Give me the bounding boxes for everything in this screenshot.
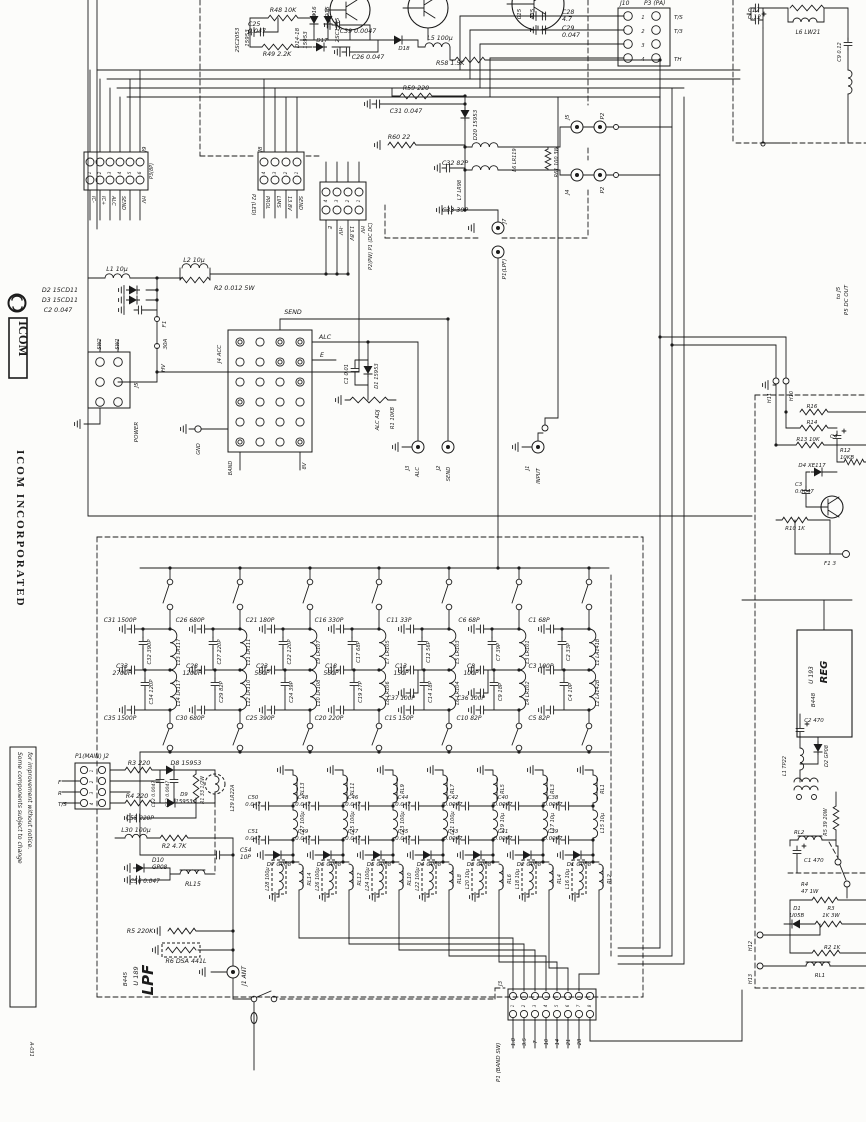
capacitor — [267, 706, 279, 714]
label-io-p1dc-sig-0: E — [326, 226, 332, 230]
label-input-c1: C1 0.01 — [344, 364, 350, 384]
terminal — [238, 400, 242, 404]
terminal — [307, 579, 313, 585]
label-lpf-rev: B445 — [123, 971, 129, 986]
junction-dot — [350, 627, 353, 630]
label-lpf-filters-5-ct: C6 68P — [458, 617, 480, 624]
terminal — [98, 777, 105, 784]
terminal — [256, 438, 264, 446]
label-lpf-band-bands-1: 3.5 — [522, 1038, 528, 1046]
ground-symbol — [458, 851, 463, 860]
wire — [335, 770, 343, 775]
ground-symbol — [119, 306, 124, 315]
wire — [582, 729, 588, 745]
diode — [792, 920, 800, 929]
label-lpf-filters-3-ct: C16 330P — [315, 617, 344, 624]
terminal — [624, 54, 633, 63]
ground-symbol — [75, 420, 80, 429]
wire — [498, 170, 571, 175]
label-input-j1: J1 — [525, 466, 531, 472]
label-lpf-filters-2-cm2: C24 39P — [289, 680, 295, 702]
terminal — [509, 1010, 516, 1017]
terminal — [80, 788, 87, 795]
terminal — [260, 158, 268, 166]
label-dc-reg: REG — [819, 661, 830, 684]
label-lpf-main-ts: T/S — [58, 802, 67, 808]
label-lpf-filters-1-lt: L11 LR111 — [246, 639, 252, 666]
label-lpf-filters-4-cc: C13150P — [393, 663, 408, 677]
wire — [163, 729, 169, 745]
label-pa-d_range: D14-18 — [295, 27, 301, 48]
label-lpf-band-bands-5: 21 — [566, 1039, 572, 1045]
capacitor — [127, 625, 139, 633]
terminal — [296, 418, 304, 426]
label-lpf-filters-6-cc: C3 100P — [529, 663, 554, 670]
ground-symbol — [570, 893, 575, 902]
label-pa-q1: 2SC2053 — [235, 27, 241, 52]
label-lpf-band-pins-3: 4 — [543, 1004, 548, 1007]
ground-symbol — [260, 706, 265, 715]
terminal — [276, 358, 284, 366]
label-pa-c25: C250.047 — [248, 21, 266, 35]
junction-dot — [291, 838, 294, 841]
label-lpf-r1: R1 33 1/2W — [200, 776, 206, 804]
label-lpf-band-pins-4: 5 — [554, 1004, 559, 1007]
label-lpf-relays-4-c1: C420.0047 — [444, 795, 463, 808]
junction-dot — [283, 668, 286, 671]
terminal — [296, 438, 304, 446]
diode — [373, 851, 381, 860]
capacitor — [211, 678, 219, 690]
label-dc-rl1: RL1 — [815, 973, 825, 979]
label-lpf-filters-2-cb: C25 390P — [246, 715, 275, 722]
label-pa-d_type: 15953 — [303, 31, 309, 49]
terminal — [614, 125, 619, 130]
terminal — [96, 398, 105, 407]
inductor — [800, 748, 804, 770]
label-lpf-filters-4-cm2: C14 18P — [428, 680, 434, 702]
label-io-j8-sig-1: LIMS — [275, 196, 281, 209]
ground-symbol — [119, 296, 124, 305]
capacitor — [511, 802, 523, 810]
wire — [385, 770, 393, 775]
wire — [545, 97, 558, 425]
connector-j9 — [84, 152, 148, 190]
junction-dot — [155, 288, 158, 291]
coax-connector — [598, 125, 602, 129]
inductor — [105, 274, 130, 278]
label-io-j8-pins-2: 2 — [283, 171, 289, 174]
capacitor — [546, 706, 558, 714]
wire — [299, 890, 513, 991]
coax-connector — [446, 445, 450, 449]
junction-dot — [562, 668, 565, 671]
wire — [485, 770, 493, 775]
terminal — [344, 206, 352, 214]
terminal — [238, 440, 242, 444]
junction-dot — [352, 668, 355, 671]
label-io-j8-pins-1: 3 — [272, 171, 278, 174]
label-lpf-l29: L29 LR22A — [230, 784, 236, 811]
terminal — [446, 745, 452, 751]
terminal — [322, 188, 330, 196]
ground-symbol — [125, 864, 130, 873]
wire — [512, 729, 518, 745]
terminal — [773, 378, 779, 384]
wire — [84, 408, 100, 424]
label-power-f1: F1 — [162, 321, 168, 328]
connector-j4-acc — [228, 330, 312, 452]
label-lpf-filters-4-cb: C15 150P — [385, 715, 414, 722]
junction-dot — [591, 838, 594, 841]
junction-dot — [231, 853, 234, 856]
label-lpf-filters-6-ct: C1 68P — [528, 617, 550, 624]
label-input-alc: ALC — [318, 334, 332, 341]
terminal — [322, 206, 330, 214]
terminal — [586, 579, 592, 585]
wire — [442, 729, 448, 745]
junction-dot — [422, 668, 425, 671]
terminal — [652, 40, 661, 49]
terminal — [9, 295, 26, 312]
label-io-j9-pins-0: 1 — [87, 171, 93, 174]
terminal — [98, 766, 105, 773]
label-io-j9-j: J9 — [142, 146, 148, 153]
inductor — [794, 786, 818, 790]
terminal — [531, 1010, 538, 1017]
label-dc-h11: H11 — [767, 393, 773, 403]
label-dc-c1: C1 470 — [804, 858, 824, 864]
terminal — [333, 206, 341, 214]
junction-dot — [591, 853, 594, 856]
label-lpf-j1: J1 ANT — [241, 965, 248, 987]
capacitor — [281, 678, 289, 690]
label-lpf-band-pins-2: 3 — [532, 1004, 537, 1007]
label-lpf-r4: R4 220 — [126, 793, 148, 800]
resistor — [800, 409, 828, 415]
coax-connector — [575, 173, 579, 177]
terminal — [256, 338, 264, 346]
capacitor — [361, 802, 373, 810]
junction-dot — [168, 627, 171, 630]
junction-dot — [238, 708, 241, 711]
label-lpf-u: U 189 — [132, 966, 140, 985]
label-dc-r16: R16 — [807, 404, 818, 410]
capacitor — [336, 706, 348, 714]
terminal — [256, 398, 264, 406]
junction-dot — [447, 627, 450, 630]
capacitor — [420, 678, 428, 690]
junction-dot — [291, 804, 294, 807]
label-lpf-relays-0-rt: RL13 — [300, 782, 306, 795]
junction-dot — [447, 750, 450, 753]
label-lpf-filters-1-cm1: C27 220P — [217, 639, 223, 665]
wire — [355, 360, 368, 364]
label-dc-d1: D1U05B — [790, 906, 805, 919]
ground-symbol — [365, 100, 370, 109]
label-power-l1: L1 10μ — [106, 266, 128, 273]
label-io-j8-sig-3: SEND — [297, 196, 303, 210]
label-lpf-filters-2-cc: C23560P — [254, 663, 269, 677]
label-lpf-filters-4-lt: L5 LR103 — [455, 640, 461, 663]
label-lpf-relays-3-rt: RL7 — [450, 783, 456, 793]
label-io-p1dc-sig-3: HV — [359, 226, 365, 234]
terminal — [531, 992, 538, 999]
junction-dot — [391, 860, 394, 863]
label-dc-toj5: to J5 — [836, 286, 842, 299]
terminal — [282, 158, 290, 166]
terminal — [586, 723, 592, 729]
junction-dot — [591, 804, 594, 807]
diode — [523, 851, 531, 860]
terminal — [98, 799, 105, 806]
label-lpf-band-pins-0: 1 — [510, 1005, 515, 1008]
ground-symbol — [155, 927, 160, 936]
terminal — [564, 1010, 571, 1017]
label-dc-l1: L1 TP22 — [782, 756, 788, 776]
junction-dot — [463, 94, 466, 97]
terminal — [126, 158, 134, 166]
label-pa-r61: R61 100 3W — [554, 146, 560, 178]
capacitor — [461, 802, 473, 810]
terminal — [844, 881, 850, 887]
junction-dot — [463, 145, 466, 148]
capacitor — [546, 625, 558, 633]
label-lpf-d10: D10GP08 — [152, 858, 168, 871]
label-lpf-c55: C55 220P — [126, 816, 154, 822]
resistor — [545, 149, 551, 169]
label-lpf-relays-3-c2: C450.047 — [395, 829, 411, 842]
junction-dot — [281, 627, 284, 630]
terminal — [136, 158, 144, 166]
capacitor — [127, 706, 139, 714]
wire — [449, 890, 546, 991]
junction-dot — [155, 298, 158, 301]
label-pa-j7: J7 — [502, 218, 508, 225]
label-lpf-filters-6-lt: L1 LA141B — [595, 638, 601, 665]
label-pa-c26: C26 0.047 — [352, 54, 384, 61]
wire — [303, 729, 309, 745]
inductor — [472, 143, 498, 147]
terminal — [586, 604, 592, 610]
ground-symbol — [378, 766, 383, 775]
junction-dot — [391, 838, 394, 841]
junction-dot — [341, 838, 344, 841]
label-pa-f1: 015 — [517, 8, 523, 19]
terminal — [516, 723, 522, 729]
wire — [465, 210, 498, 222]
terminal — [564, 992, 571, 999]
label-pa-d17: D17 — [316, 38, 328, 44]
terminal — [237, 723, 243, 729]
label-lpf-relays-2-rt: RL9 — [400, 784, 406, 794]
wire — [590, 990, 742, 1041]
label-lpf-relays-3-d: D4 GP08 — [417, 862, 442, 868]
resistor — [193, 774, 199, 803]
label-pa-p1: P1(LPF) — [502, 259, 508, 280]
inductor — [215, 776, 219, 792]
label-lpf-filters-2-lt: L9 LR107 — [316, 640, 322, 664]
wire — [498, 127, 571, 147]
terminal — [624, 26, 633, 35]
junction-dot — [391, 853, 394, 856]
wire — [399, 890, 535, 991]
label-dc-c12: C120.12 — [748, 8, 761, 21]
label-lpf-relays-4-rt: RL5 — [500, 783, 506, 793]
ground-symbol — [435, 164, 440, 173]
label-power-sw2: SW2 — [97, 338, 103, 349]
terminal — [276, 338, 284, 346]
capacitor — [170, 775, 178, 787]
wire — [535, 770, 543, 775]
wire — [349, 890, 524, 991]
label-lpf-filters-3-lt: L7 LR105 — [385, 640, 391, 663]
junction-dot — [291, 860, 294, 863]
resistor — [168, 928, 196, 934]
wire — [824, 8, 848, 40]
label-power-hv: HV — [161, 363, 167, 372]
terminal — [282, 176, 290, 184]
junction-dot — [238, 750, 241, 753]
wire — [512, 585, 518, 603]
resistor — [400, 93, 432, 99]
junction-dot — [517, 627, 520, 630]
resistor — [160, 835, 188, 841]
capacitor — [461, 836, 473, 844]
label-lpf-relays-0-rb: RL14 — [307, 872, 313, 885]
junction-dot — [238, 627, 241, 630]
terminal — [114, 398, 123, 407]
label-pa-j10sig-1: T/3 — [674, 29, 683, 35]
label-lpf-l30: L30 100μ — [121, 827, 151, 834]
resistor — [800, 425, 828, 431]
label-lpf-band-bands-6: 28 — [577, 1039, 583, 1045]
terminal — [298, 380, 302, 384]
junction-dot — [587, 627, 590, 630]
label-lpf-filters-6-lb: L2 LA142B — [595, 679, 601, 706]
wire — [585, 770, 593, 775]
junction-dot — [447, 566, 450, 569]
label-power-c2: C2 0.047 — [44, 307, 72, 314]
junction-dot — [658, 335, 661, 338]
wire — [618, 88, 672, 956]
label-input-j4acc: J4 ACC — [217, 345, 223, 364]
junction-dot — [308, 668, 311, 671]
wire — [372, 729, 378, 745]
label-lpf-relays-6-d: D1 GP08 — [567, 862, 592, 868]
ground-symbol — [258, 851, 263, 860]
terminal — [783, 378, 789, 384]
terminal — [80, 766, 87, 773]
terminal — [355, 188, 363, 196]
capacitor — [793, 846, 801, 858]
resistor — [268, 15, 298, 21]
inductor — [125, 834, 147, 838]
terminal — [278, 360, 282, 364]
label-pa-j10sig-3: TH — [674, 57, 682, 63]
label-dc-r4: R447 1W — [801, 882, 819, 895]
label-lpf-filters-4-cm3: C37 100P — [387, 696, 415, 702]
diode — [394, 36, 402, 45]
plus-mark — [802, 844, 806, 848]
capacitor — [267, 625, 279, 633]
label-input-adj: ALC ADJ — [375, 409, 381, 431]
junction-dot — [155, 276, 158, 279]
ground-symbol — [478, 766, 483, 775]
terminal — [276, 438, 284, 446]
junction-dot — [335, 272, 338, 275]
label-lpf-c56: C56 0.047 — [130, 879, 160, 885]
select-dash — [162, 943, 200, 957]
junction-dot — [517, 708, 520, 711]
ground-symbol — [153, 946, 158, 955]
junction-dot — [541, 860, 544, 863]
ground-symbol — [328, 766, 333, 775]
label-lpf-c52: C52 0.0047 — [151, 781, 157, 808]
label-lpf-filters-1-lb: L12 LR110 — [246, 680, 252, 707]
terminal — [195, 426, 201, 432]
label-io-p1dc-pins-2: 2 — [345, 199, 351, 202]
inductor — [794, 778, 818, 782]
terminal — [307, 604, 313, 610]
resistor — [790, 5, 824, 11]
terminal — [237, 745, 243, 751]
terminal — [236, 418, 244, 426]
ground-symbol — [399, 706, 404, 715]
label-lpf-filters-5-cm2: C9 18P — [498, 682, 504, 701]
label-lpf-relays-1-c2: C490.047 — [295, 829, 311, 842]
terminal — [516, 604, 522, 610]
label-pa-r49: R49 2.2K — [263, 51, 292, 58]
label-lpf-relays-3-lb: L22 100μ — [415, 867, 421, 890]
label-lpf-filters-5-lt: L3 LR101 — [525, 640, 531, 663]
label-lpf-filters-1-cm2: C29 82P — [219, 680, 225, 702]
coax-connector — [496, 226, 500, 230]
junction-dot — [441, 853, 444, 856]
label-lpf-filters-2-cm1: C22 120P — [287, 639, 293, 665]
ground-symbol — [470, 893, 475, 902]
label-pa-j10pins-3: 4 — [641, 57, 644, 63]
label-pa-d16: D16 — [312, 6, 318, 18]
label-lpf-band-bands-2: 7 — [533, 1040, 539, 1044]
label-lpf-filters-1-cb: C30 680P — [176, 715, 205, 722]
label-lpf-main-pins-2: 3 — [89, 791, 94, 794]
label-io-j9-pins-4: 5 — [127, 171, 133, 174]
junction-dot — [420, 627, 423, 630]
terminal — [116, 176, 124, 184]
label-lpf-c53: C53 0.0047 — [165, 781, 171, 808]
junction-dot — [587, 708, 590, 711]
terminal — [586, 1010, 593, 1017]
label-lpf-filters-3-cm1: C17 68P — [356, 640, 362, 662]
coax-connector — [231, 970, 235, 974]
junction-dot — [366, 340, 369, 343]
wire — [280, 319, 448, 441]
terminal — [575, 992, 582, 999]
junction-dot — [463, 102, 466, 105]
capacitor — [511, 836, 523, 844]
label-input-r1: R1 10KB — [390, 407, 396, 430]
label-io-p1dc-sig-2: 13.8V — [348, 226, 354, 241]
junction-dot — [670, 343, 673, 346]
junction-dot — [211, 627, 214, 630]
terminal — [307, 723, 313, 729]
label-input-inp: INPUT — [536, 467, 542, 483]
terminal — [652, 12, 661, 21]
terminal — [296, 398, 304, 406]
label-pa-l5: L5 100μ — [427, 35, 453, 42]
wire — [538, 433, 543, 441]
